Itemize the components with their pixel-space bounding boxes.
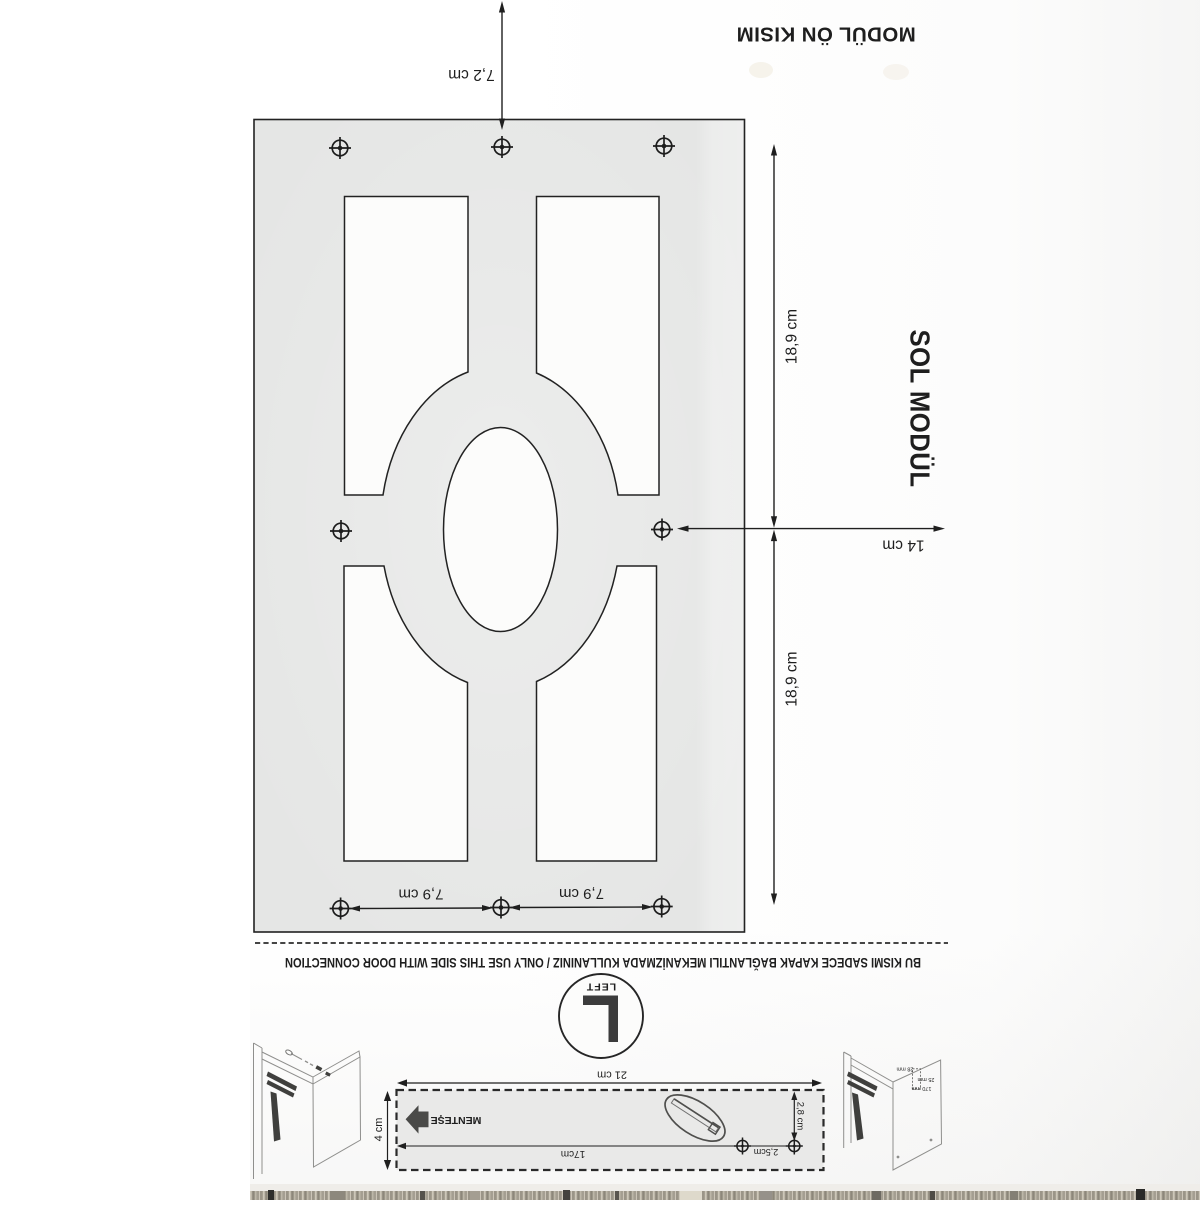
svg-text:28 mm: 28 mm <box>896 1066 913 1072</box>
svg-text:LEFT: LEFT <box>586 981 616 993</box>
svg-text:25 mm: 25 mm <box>917 1076 934 1082</box>
svg-text:7,9 cm: 7,9 cm <box>398 886 443 903</box>
svg-text:2,8 cm: 2,8 cm <box>794 1102 805 1131</box>
svg-text:7,2 cm: 7,2 cm <box>448 66 495 83</box>
svg-text:18,9 cm: 18,9 cm <box>784 309 801 364</box>
svg-text:BU KISMI SADECE KAPAK BAĞLANTI: BU KISMI SADECE KAPAK BAĞLANTILI MEKANİZ… <box>285 955 921 970</box>
svg-text:17cm: 17cm <box>561 1148 585 1159</box>
svg-text:2,5cm: 2,5cm <box>754 1147 779 1157</box>
svg-text:7,9 cm: 7,9 cm <box>559 885 604 902</box>
svg-text:21 cm: 21 cm <box>597 1069 627 1081</box>
svg-text:4 cm: 4 cm <box>373 1118 385 1142</box>
svg-text:MODÜL ÖN KISIM: MODÜL ÖN KISIM <box>736 23 915 46</box>
svg-text:SOL MODÜL: SOL MODÜL <box>905 330 936 488</box>
svg-text:170 mm: 170 mm <box>911 1085 931 1091</box>
svg-text:18,9 cm: 18,9 cm <box>784 651 801 706</box>
svg-text:MENTEŞE: MENTEŞE <box>431 1114 482 1126</box>
svg-text:14 cm: 14 cm <box>882 536 924 553</box>
